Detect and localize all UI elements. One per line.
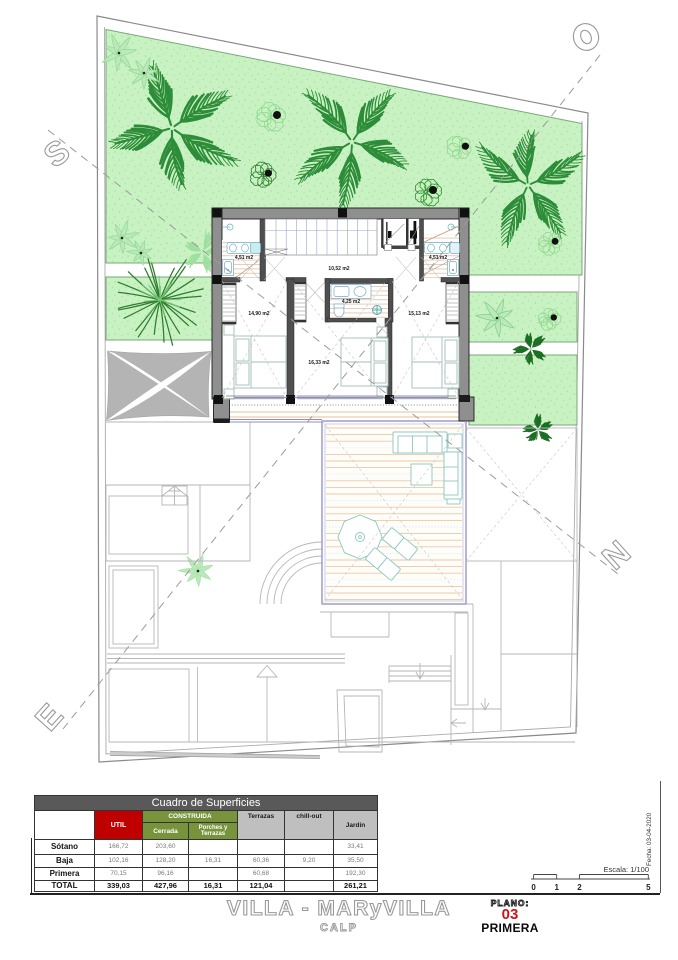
svg-text:Fecha: 03-04-2020: Fecha: 03-04-2020 — [646, 812, 653, 866]
svg-text:16,33 m2: 16,33 m2 — [308, 360, 329, 366]
svg-text:14,90 m2: 14,90 m2 — [248, 311, 269, 317]
svg-text:N: N — [595, 533, 637, 576]
svg-text:Escala: 1/100: Escala: 1/100 — [604, 865, 649, 874]
svg-text:4,25 m2: 4,25 m2 — [342, 299, 361, 305]
svg-text:0: 0 — [531, 883, 536, 892]
svg-text:S: S — [37, 132, 77, 175]
svg-text:5: 5 — [646, 883, 651, 892]
svg-text:15,13 m2: 15,13 m2 — [408, 311, 429, 317]
svg-text:2: 2 — [577, 883, 582, 892]
svg-text:1: 1 — [554, 883, 559, 892]
svg-text:10,52 m2: 10,52 m2 — [328, 266, 349, 272]
svg-text:E: E — [28, 696, 70, 737]
svg-text:4,51 m2: 4,51 m2 — [235, 255, 254, 261]
